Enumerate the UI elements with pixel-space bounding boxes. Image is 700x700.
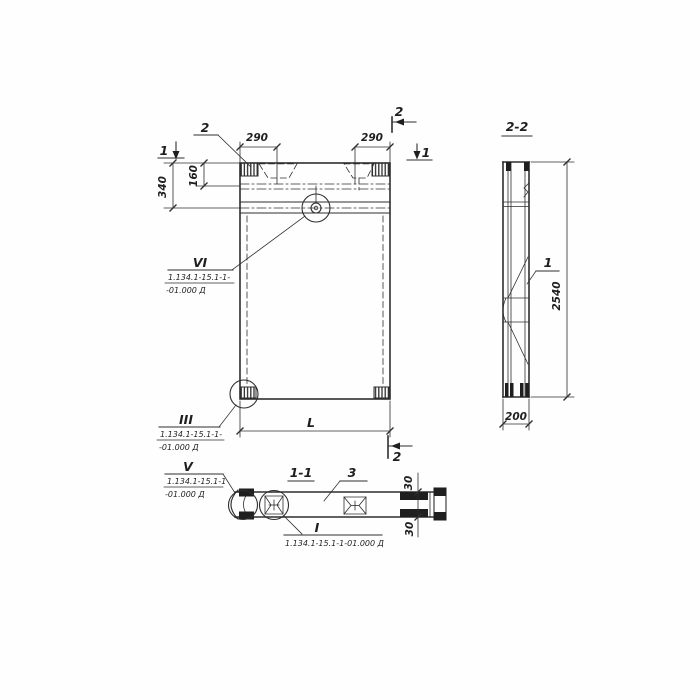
section-title: 1-1 — [290, 465, 313, 480]
cut-marker-1-right: 1 — [407, 144, 432, 160]
cut1-left-label: 1 — [160, 143, 169, 158]
arrow-left-icon — [395, 119, 404, 126]
anchor-plate-bottom-left — [241, 387, 256, 398]
side-view-2-2: 2-2 — [500, 119, 575, 430]
arrow-down-icon — [414, 151, 421, 160]
callout-v-ref1: 1.134.1-15.1-1 — [167, 477, 226, 486]
section-anchor-left-bottom — [239, 512, 254, 520]
callout-iii-ref1: 1.134.1-15.1-1- — [160, 430, 222, 439]
anchor-plate-top-left — [241, 163, 258, 176]
anchor-plate-bottom-right — [374, 387, 389, 398]
callout-vi-label: VI — [193, 255, 208, 270]
detail-2-callout: 2 — [194, 120, 251, 167]
anchor-plate-top-right — [372, 163, 389, 176]
front-view: 290 290 160 340 L 1 1 2 — [157, 104, 432, 464]
part-1-text: 1 — [544, 255, 553, 270]
callout-vi-ref1: 1.134.1-15.1-1- — [168, 273, 230, 282]
pocket-detail-left — [265, 496, 283, 514]
dim-height-2540: 2540 — [531, 159, 574, 401]
section-bar — [229, 488, 447, 520]
dim-30-top: 30 — [403, 476, 415, 491]
callout-i-label: I — [315, 520, 320, 535]
callout-i: I 1.134.1-15.1-1-01.000 Д — [284, 516, 384, 548]
dim-160: 160 — [188, 165, 200, 187]
recess-right — [344, 164, 374, 178]
detail-2-label: 2 — [201, 120, 210, 135]
part-label-3: 3 — [324, 465, 367, 501]
dim-2540-text: 2540 — [551, 281, 563, 310]
recess-left — [259, 164, 297, 178]
callout-vi: VI 1.134.1-15.1-1- -01.000 Д — [165, 216, 305, 295]
panel-drawing: 290 290 160 340 L 1 1 2 — [0, 0, 700, 700]
callout-v: V 1.134.1-15.1-1 -01.000 Д — [164, 459, 235, 499]
callout-vi-ref2: -01.000 Д — [166, 286, 206, 295]
side-anchor-top-right — [524, 162, 529, 171]
panel-outline — [240, 163, 390, 399]
callout-i-ref: 1.134.1-15.1-1-01.000 Д — [285, 539, 384, 548]
part-3-text: 3 — [348, 465, 357, 480]
section-anchor-left-top — [239, 489, 254, 497]
end-cap-anchor-bottom — [434, 512, 446, 520]
lifting-pocket-section — [503, 257, 528, 364]
cut2-top-label: 2 — [395, 104, 404, 119]
dim-200-text: 200 — [505, 411, 527, 423]
section-anchor-right-bottom — [400, 509, 428, 517]
callout-v-label: V — [183, 459, 194, 474]
side-view-title: 2-2 — [506, 119, 529, 134]
side-anchor-top-left — [506, 162, 511, 171]
cut-marker-2-bottom: 2 — [388, 436, 412, 464]
dim-30-stack: 30 30 — [403, 473, 422, 537]
side-view-outline — [503, 162, 529, 397]
cut-marker-2-top: 2 — [392, 104, 416, 132]
dim-290-left: 290 — [246, 132, 268, 144]
callout-iii: III 1.134.1-15.1-1- -01.000 Д — [157, 405, 236, 452]
cut1-right-label: 1 — [422, 145, 431, 160]
callout-v-ref2: -01.000 Д — [165, 490, 205, 499]
end-cap-anchor-top — [434, 488, 446, 496]
lifting-hole-detail — [302, 186, 330, 222]
section-view-1-1: 1-1 3 — [164, 459, 446, 548]
section-anchor-right-top — [400, 492, 428, 500]
callout-iii-label: III — [179, 412, 193, 427]
dim-290-right: 290 — [361, 132, 383, 144]
cut2-bottom-label: 2 — [393, 449, 402, 464]
dim-30-bottom: 30 — [404, 522, 416, 537]
callout-iii-ref2: -01.000 Д — [159, 443, 199, 452]
dim-340: 340 — [157, 176, 169, 198]
engineering-drawing-sheet: 290 290 160 340 L 1 1 2 — [0, 0, 700, 700]
dim-width-200: 200 — [500, 399, 533, 430]
pocket-detail-middle — [344, 497, 366, 514]
horizontal-joint-lines — [240, 184, 390, 213]
dim-length-L: L — [307, 415, 315, 430]
cut-marker-1-left: 1 — [158, 142, 184, 160]
part-label-1: 1 — [527, 255, 559, 284]
